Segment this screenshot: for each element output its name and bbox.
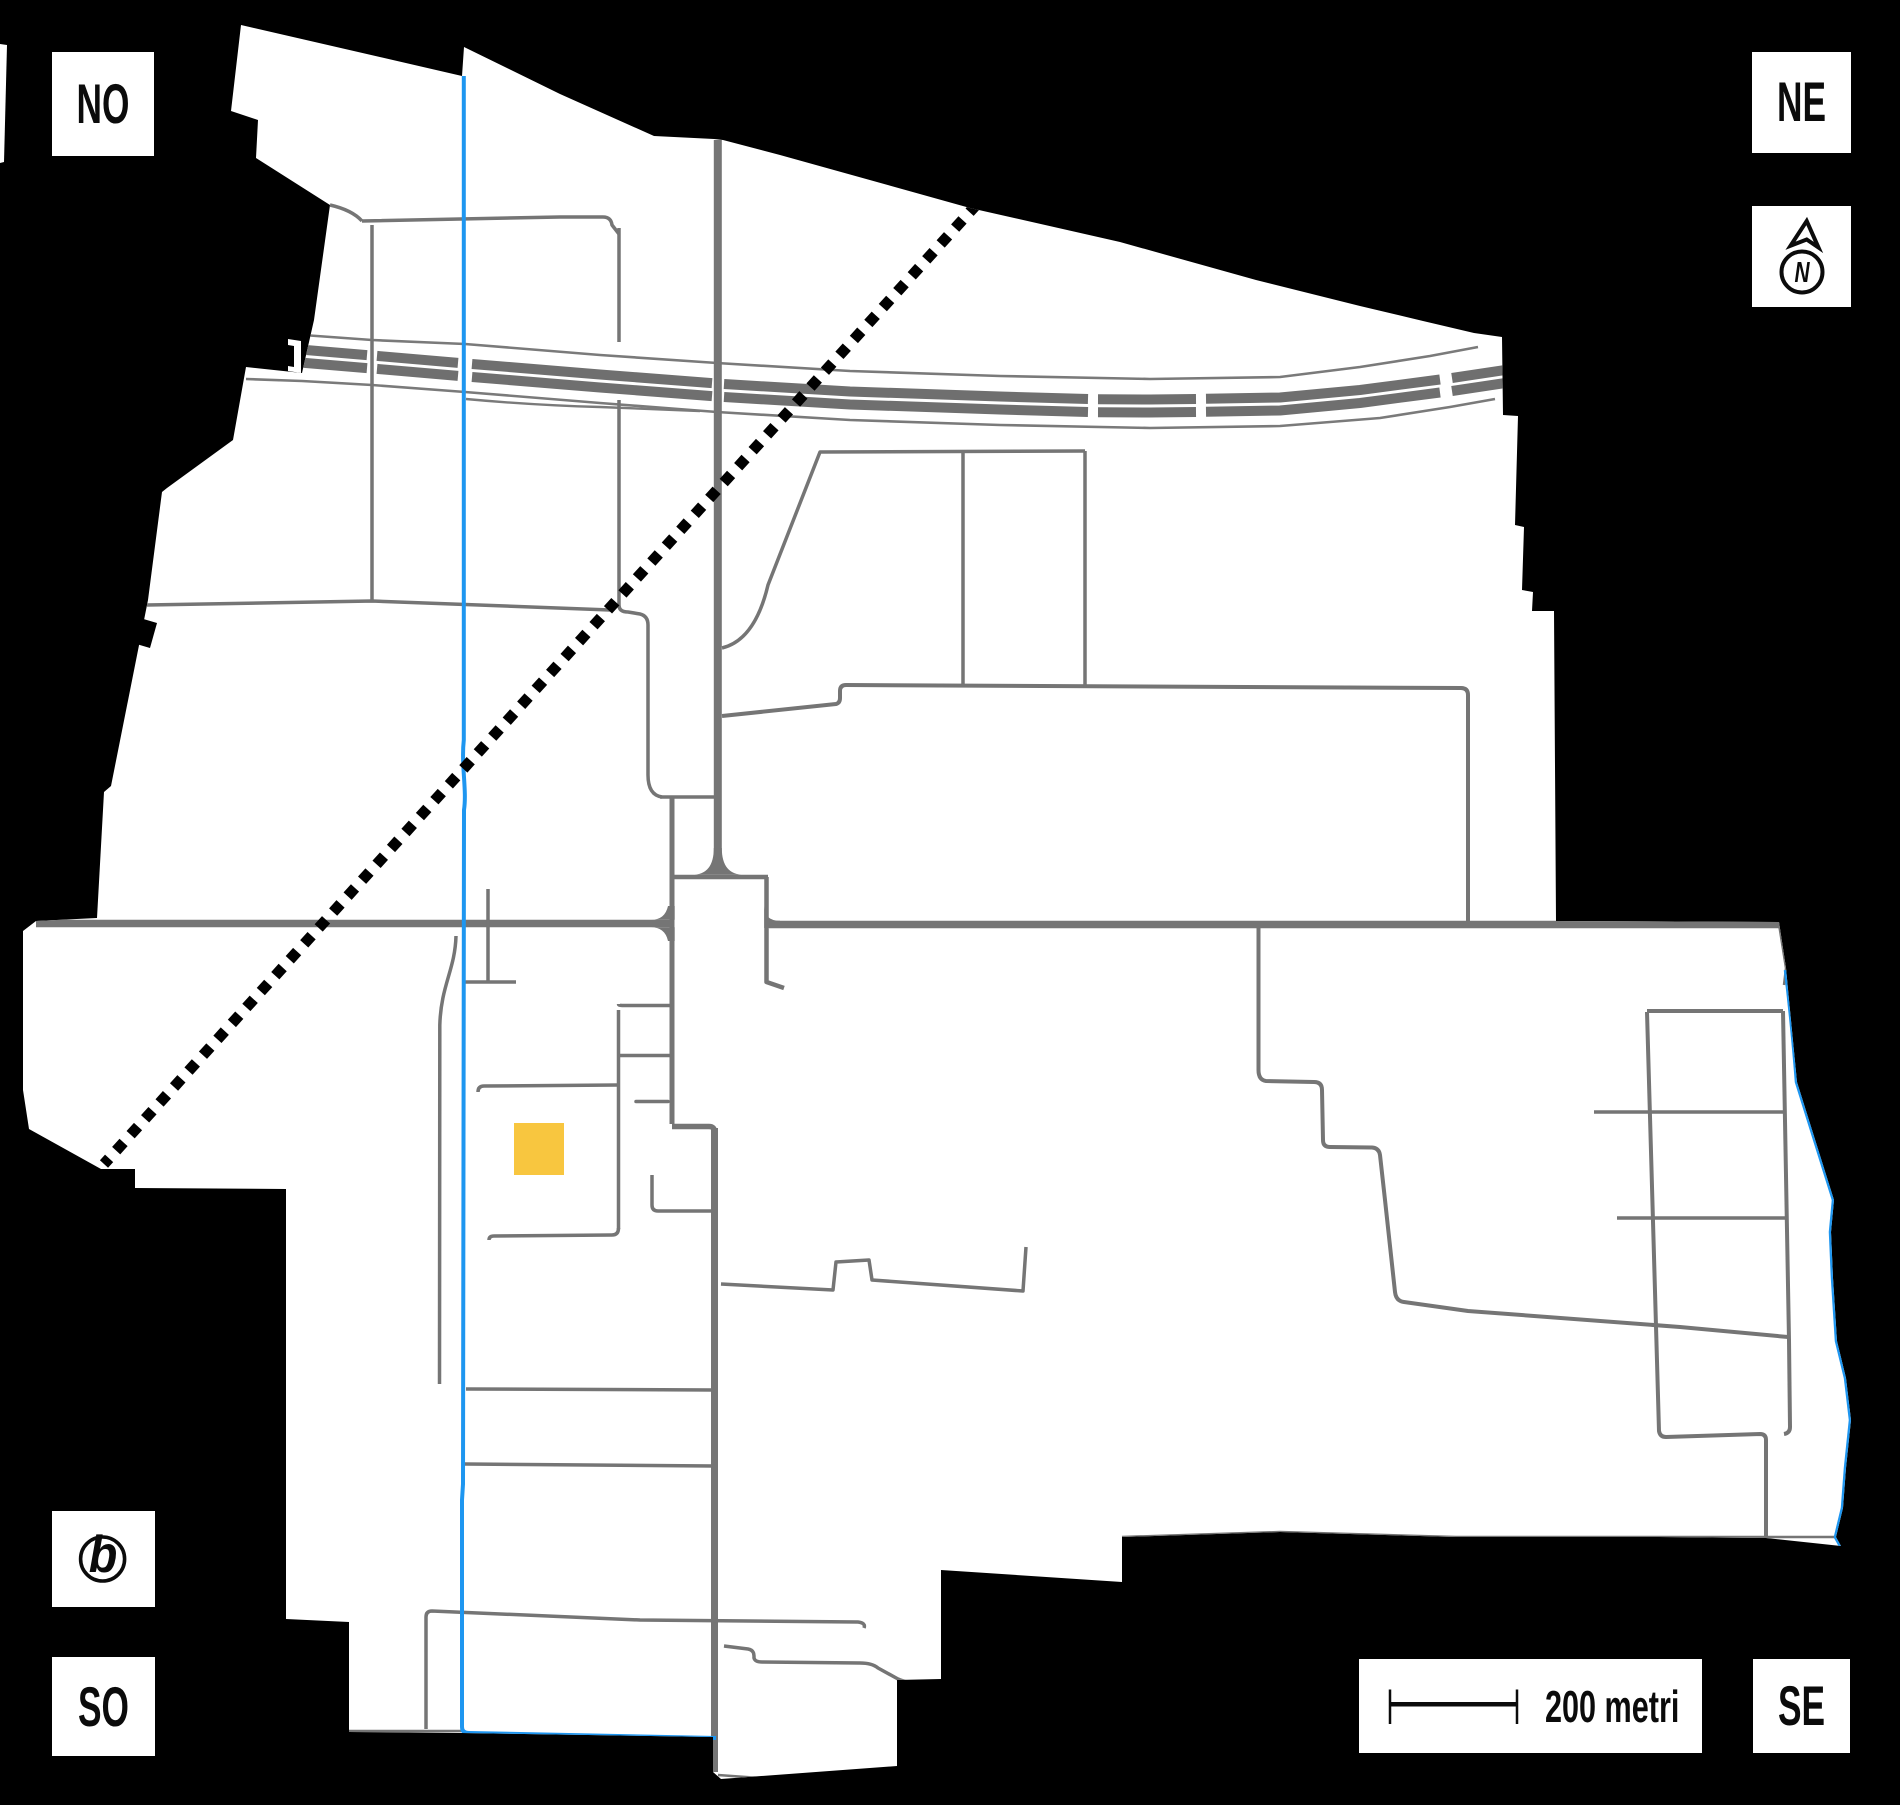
svg-text:200 metri: 200 metri [1545,1681,1679,1732]
svg-text:SE: SE [1778,1674,1825,1737]
svg-text:NE: NE [1777,70,1826,133]
svg-text:b: b [89,1526,118,1584]
svg-text:SO: SO [78,1675,129,1738]
svg-text:NO: NO [77,72,130,135]
svg-text:N: N [1794,257,1810,289]
